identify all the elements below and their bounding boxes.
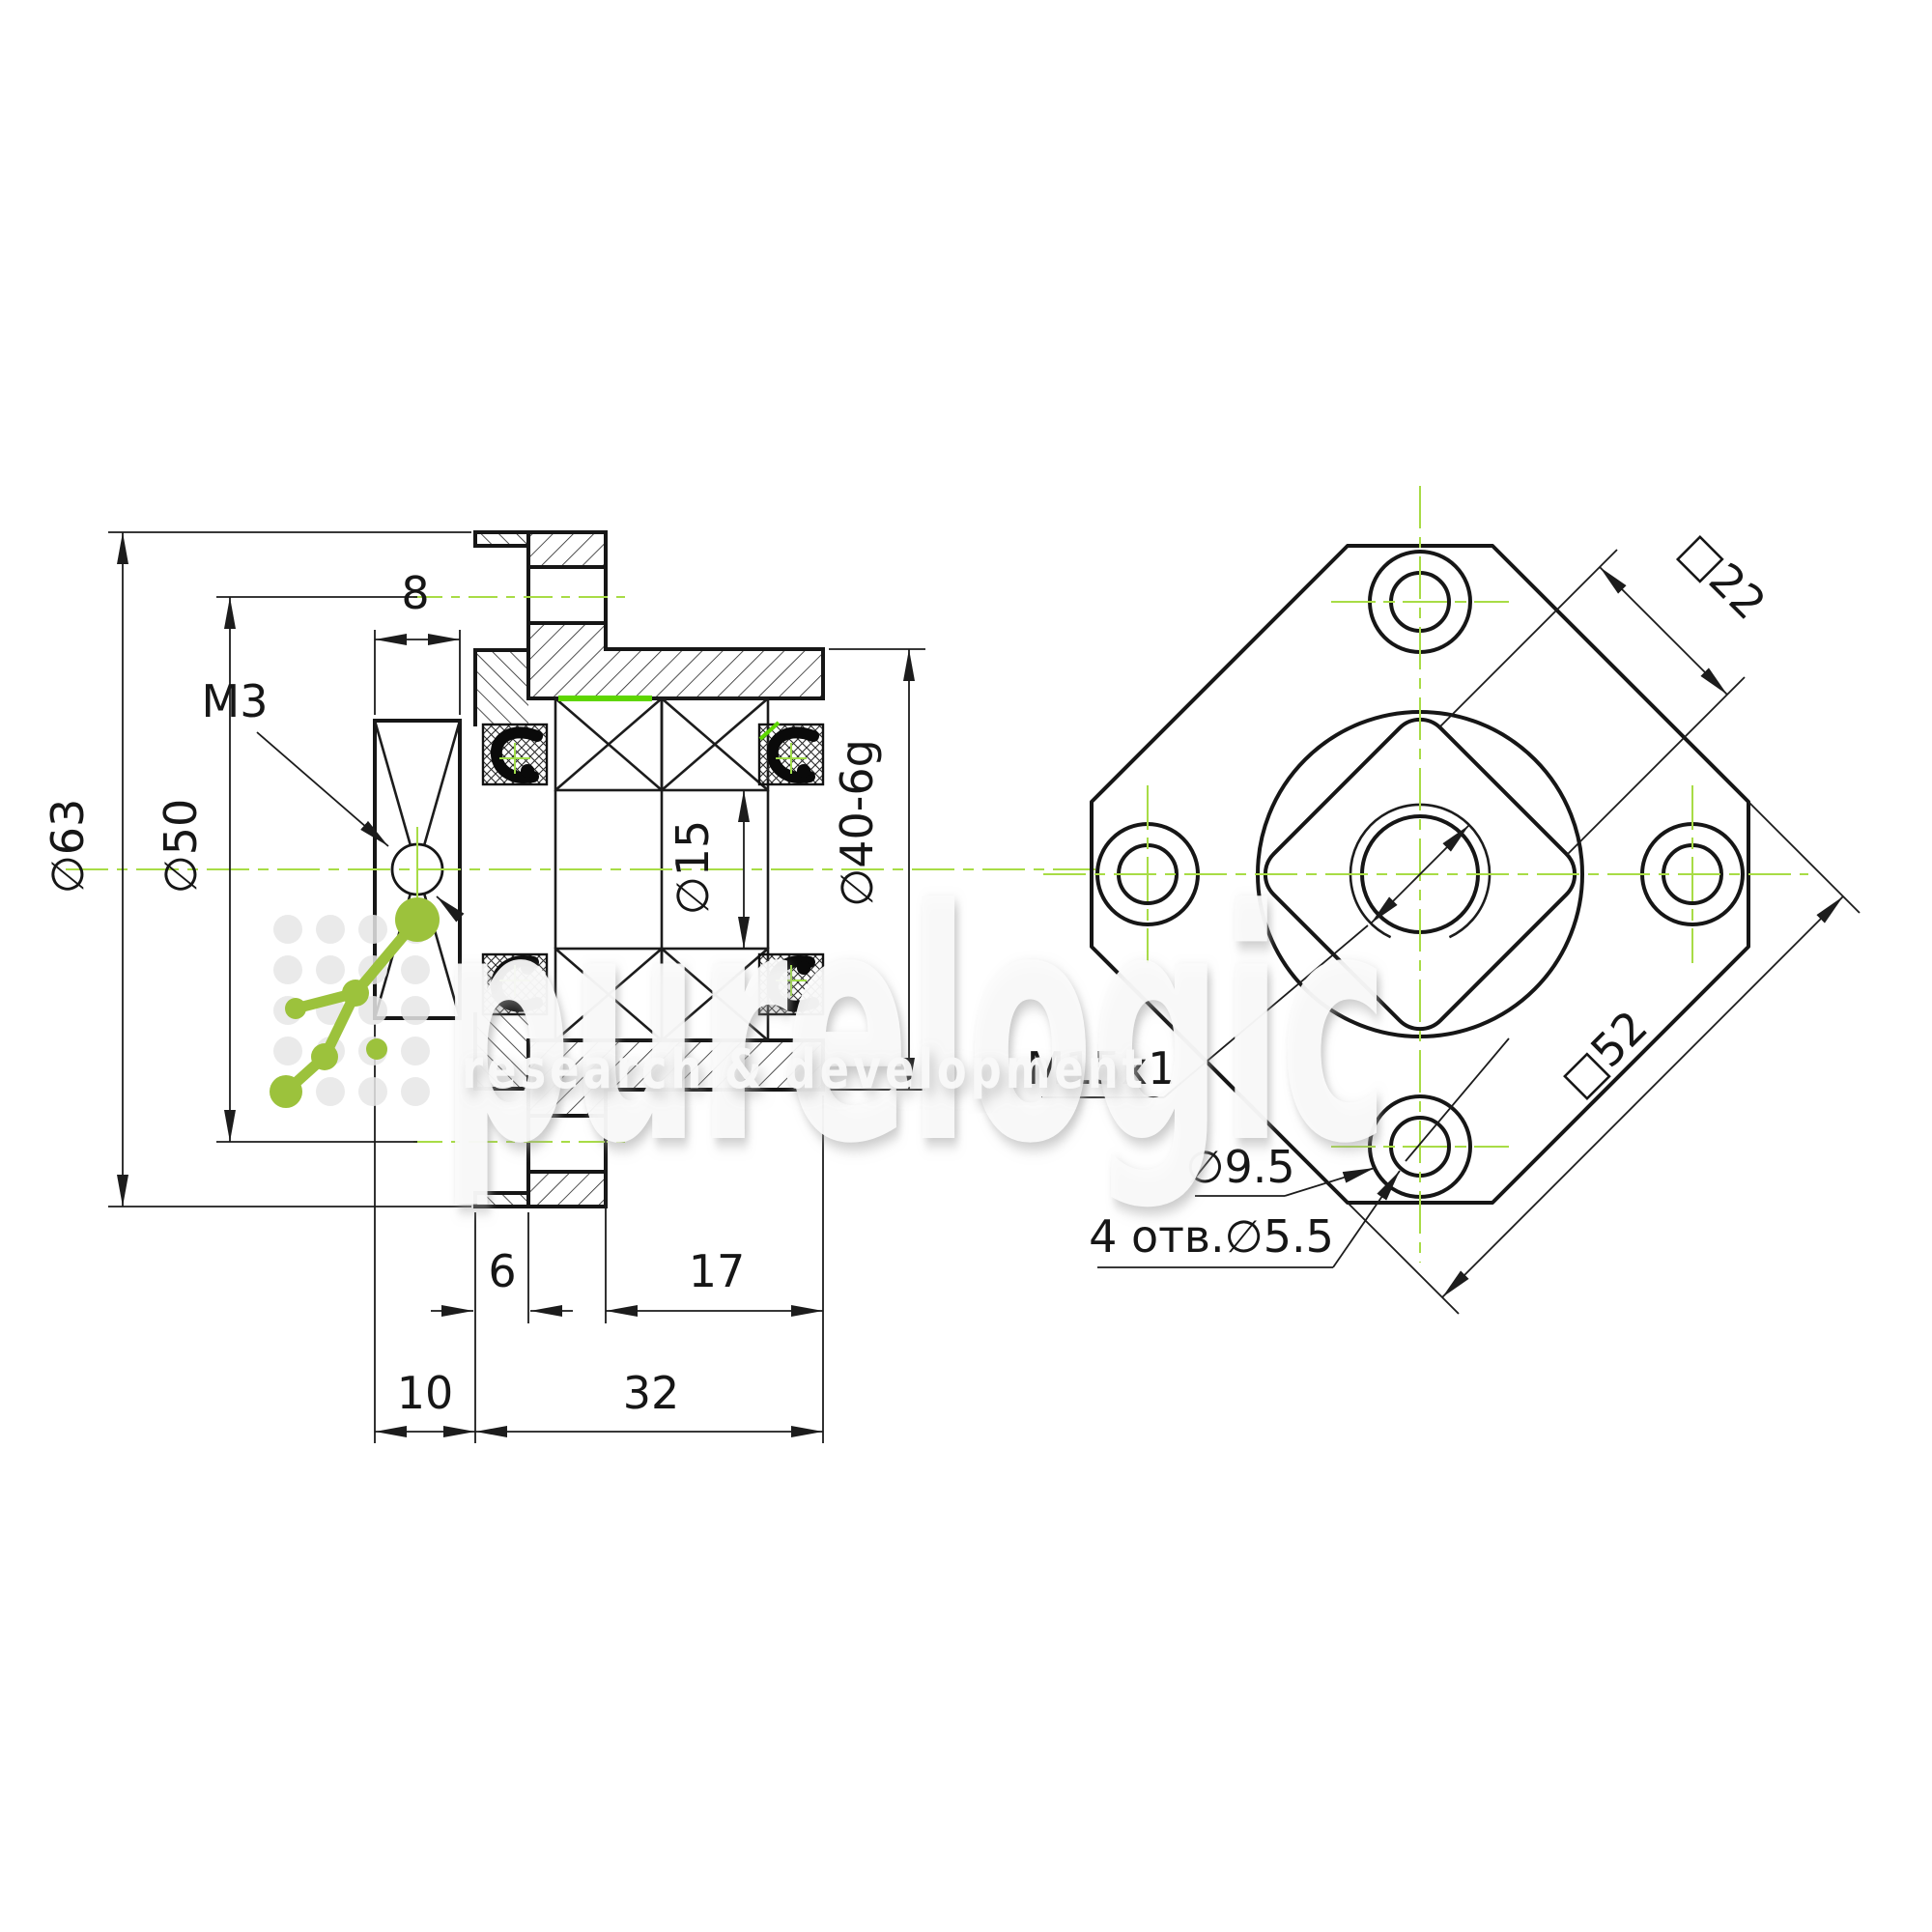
watermark: purelogic research & development — [270, 842, 1385, 1213]
dim-label-nut-width: 8 — [401, 567, 429, 619]
dim-label-nut-offset: 10 — [397, 1367, 454, 1419]
tagline-watermark-text: research & development — [462, 1037, 1147, 1100]
dim-label-body-length: 32 — [623, 1367, 680, 1419]
technical-drawing-page: ∅63 ∅50 M3 8 ∅15 ∅40-6g 6 17 10 32 — [0, 0, 1932, 1932]
dim-label-flange-thickness: 6 — [488, 1245, 516, 1297]
dim-label-bolt-circle: ∅50 — [155, 799, 207, 895]
seal-cross-section — [483, 724, 547, 784]
dim-label-bolt-holes: 4 отв.∅5.5 — [1089, 1210, 1334, 1263]
technical-drawing: ∅63 ∅50 M3 8 ∅15 ∅40-6g 6 17 10 32 — [0, 0, 1932, 1932]
brand-watermark-text: purelogic — [440, 842, 1385, 1213]
dim-label-pilot-length: 17 — [689, 1245, 746, 1297]
dim-label-set-screw: M3 — [202, 675, 269, 727]
dim-label-flange-od: ∅63 — [42, 799, 94, 895]
dim-label-wrench-flats: □22 — [1669, 524, 1776, 630]
